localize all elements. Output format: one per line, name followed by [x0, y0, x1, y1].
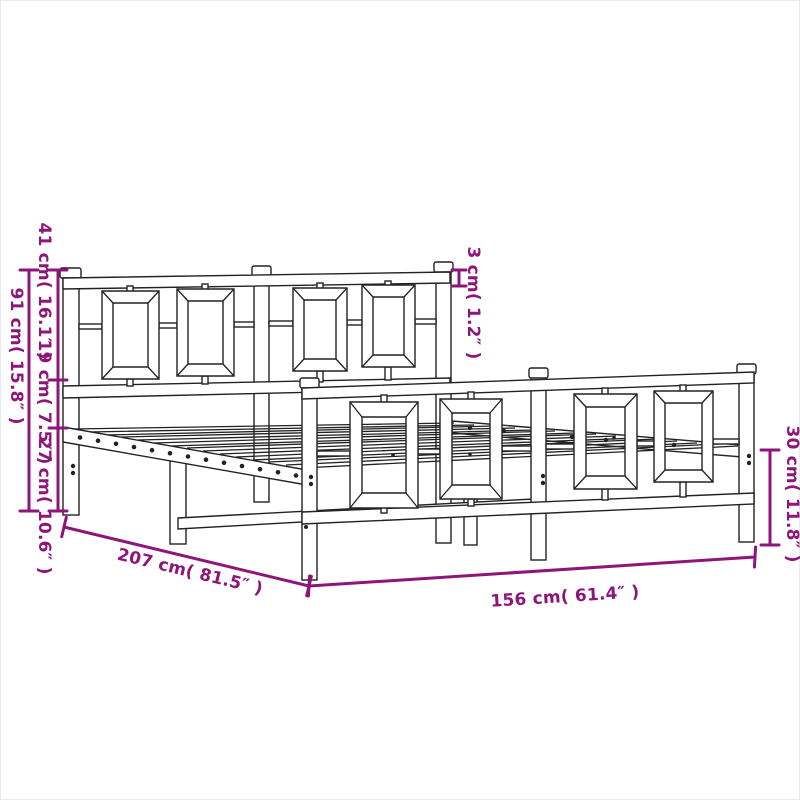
slat-base — [63, 421, 742, 545]
product-dimension-diagram: 41 cm( 16.1″ ) 19 cm( 7.5″ ) 27 cm( 10.6… — [0, 0, 800, 800]
footboard — [300, 364, 756, 580]
footboard-panel — [440, 399, 502, 499]
dimension-label-tube-thickness: 3 cm( 1.2″ ) — [463, 246, 483, 359]
dimension-line-clearance — [761, 450, 779, 545]
dimension-label-underbed-clearance: 30 cm( 11.8″ ) — [782, 425, 800, 562]
headboard-panel — [102, 291, 159, 379]
footboard-panel — [350, 402, 418, 508]
dimension-label-total-height: 91 cm( 15.8″ ) — [6, 287, 26, 424]
headboard-panel — [177, 289, 234, 376]
footboard-panel — [654, 391, 713, 482]
headboard-panel — [293, 288, 347, 371]
dimension-label-headboard-lower-height: 27 cm( 10.6″ ) — [34, 437, 54, 574]
headboard-panel — [362, 285, 415, 367]
bed-frame-line-drawing — [0, 0, 800, 800]
